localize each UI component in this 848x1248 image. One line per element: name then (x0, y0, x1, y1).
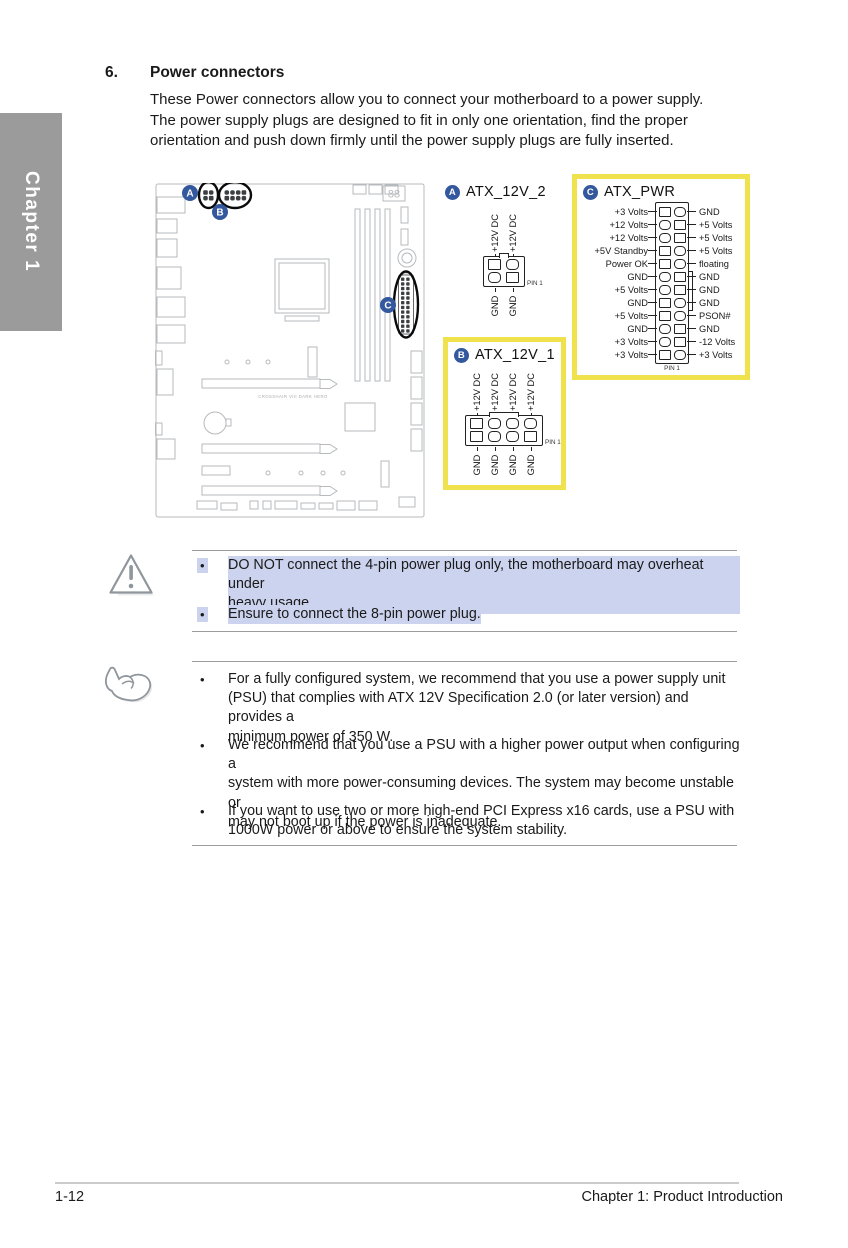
board-24pin-connector (399, 275, 414, 334)
pin-label-right: +5 Volts (699, 233, 732, 243)
leader-line (648, 354, 657, 355)
pin-label-right: +5 Volts (699, 246, 732, 256)
leader-line (687, 250, 696, 251)
leader-line (687, 237, 696, 238)
pin-row: Power OKfloating (584, 257, 744, 270)
pin-label-left: +5 Volts (584, 311, 648, 321)
callout-ellipse-b (219, 183, 251, 208)
board-4pin-connector (203, 190, 213, 200)
pin (674, 337, 686, 347)
pin (674, 233, 686, 243)
pin-label-left: +12 Volts (584, 220, 648, 230)
pin-voltage-label: +12V DC (472, 364, 482, 420)
pin (470, 431, 483, 442)
pin (659, 207, 671, 217)
pin-label-right: +5 Volts (699, 220, 732, 230)
bullet-icon: • (197, 802, 228, 840)
connector-body (483, 256, 525, 287)
connector-latch (489, 412, 519, 417)
pin (488, 272, 501, 283)
pin (470, 418, 483, 429)
chapter-tab-label: Chapter 1 (20, 171, 42, 272)
page-number: 1-12 (55, 1189, 84, 1205)
pin (524, 418, 537, 429)
footer-divider (55, 1182, 739, 1184)
divider (192, 845, 737, 846)
pin-row: +5 VoltsGND (584, 283, 744, 296)
footer-chapter-label: Chapter 1: Product Introduction (581, 1189, 783, 1205)
intro-paragraph: These Power connectors allow you to conn… (150, 90, 750, 152)
pin-label-right: GND (699, 285, 720, 295)
pin-label-left: +12 Volts (584, 233, 648, 243)
callout-ellipse-a (199, 183, 218, 208)
pin (524, 431, 537, 442)
pin (659, 233, 671, 243)
divider (192, 631, 737, 632)
pin (506, 418, 519, 429)
warning-icon (107, 552, 157, 599)
atxpwr-pinout-diagram: +3 VoltsGND+12 Volts+5 Volts+12 Volts+5 … (584, 205, 744, 372)
atx12v1-pinout-diagram: +12V DCGND+12V DCGND+12V DCGND+12V DCGND… (465, 369, 543, 491)
atxpwr-title: ATX_PWR (604, 184, 675, 200)
pin1-label: PIN 1 (527, 280, 543, 287)
pin (659, 259, 671, 269)
pin-label-right: GND (699, 207, 720, 217)
pin-rows: +3 VoltsGND+12 Volts+5 Volts+12 Volts+5 … (584, 205, 744, 361)
chapter-tab: Chapter 1 (0, 113, 62, 331)
section-title: Power connectors (150, 64, 284, 82)
pin-label-right: PSON# (699, 311, 731, 321)
pin-label-right: floating (699, 259, 729, 269)
pin (659, 246, 671, 256)
badge-a: A (445, 185, 460, 200)
leader-line (648, 328, 657, 329)
connector-latch (499, 253, 509, 258)
pin (659, 350, 671, 360)
connector-latch (689, 271, 693, 311)
pin-row: GNDGND (584, 322, 744, 335)
badge-b: B (454, 348, 469, 363)
bullet-icon: • (197, 605, 228, 624)
connector-body (465, 415, 543, 446)
pin-label-left: +3 Volts (584, 207, 648, 217)
pin-label-right: GND (699, 272, 720, 282)
pin-label-right: -12 Volts (699, 337, 735, 347)
atx12v2-title: ATX_12V_2 (466, 184, 546, 200)
pin-label-left: +3 Volts (584, 337, 648, 347)
pin (506, 259, 519, 270)
pin-voltage-label: +12V DC (508, 205, 518, 261)
board-model-label: CROSSHAIR VIII DARK HERO (258, 394, 328, 399)
pin-label-left: +5 Volts (584, 285, 648, 295)
pin-row: +12 Volts+5 Volts (584, 218, 744, 231)
pin (674, 207, 686, 217)
pin (488, 431, 501, 442)
leader-line (648, 289, 657, 290)
board-badge-b-label: B (216, 208, 223, 219)
pin (674, 220, 686, 230)
leader-line (648, 263, 657, 264)
atx12v1-callout-box: B ATX_12V_1 +12V DCGND+12V DCGND+12V DCG… (443, 337, 566, 490)
pin (659, 324, 671, 334)
atx12v1-header: B ATX_12V_1 (454, 347, 555, 363)
board-badge-a-label: A (186, 189, 193, 200)
pin-label-left: Power OK (584, 259, 648, 269)
pin (674, 246, 686, 256)
pin-row: GNDGND (584, 296, 744, 309)
pin-label-left: GND (584, 272, 648, 282)
caution-text: Ensure to connect the 8-pin power plug. (228, 605, 481, 624)
pin-voltage-label: +12V DC (526, 364, 536, 420)
manual-page: Chapter 1 6. Power connectors These Powe… (0, 0, 848, 1248)
pin1-label: PIN 1 (655, 365, 689, 372)
pin (674, 285, 686, 295)
leader-line (648, 211, 657, 212)
pin-row (468, 418, 541, 431)
atxpwr-callout-box: C ATX_PWR +3 VoltsGND+12 Volts+5 Volts+1… (572, 174, 750, 380)
pin (488, 259, 501, 270)
divider (192, 550, 737, 551)
pin (674, 324, 686, 334)
pin (506, 272, 519, 283)
pin-label-left: GND (584, 298, 648, 308)
leader-line (687, 211, 696, 212)
leader-line (648, 302, 657, 303)
pin-label-left: +3 Volts (584, 350, 648, 360)
note-hand-icon (100, 663, 156, 707)
pin-label-right: +3 Volts (699, 350, 732, 360)
leader-line (687, 341, 696, 342)
atx12v1-title: ATX_12V_1 (475, 347, 555, 363)
pin-row (486, 271, 523, 284)
pin1-label: PIN 1 (545, 439, 561, 446)
pin-label-right: GND (699, 298, 720, 308)
atxpwr-header: C ATX_PWR (583, 184, 675, 200)
pin-label-left: GND (584, 324, 648, 334)
pin (674, 350, 686, 360)
pin-row (486, 259, 523, 272)
motherboard-diagram: 88 CROSSHAIR VIII DARK HERO A B (155, 183, 425, 518)
pin (659, 285, 671, 295)
section-number: 6. (105, 64, 118, 82)
atx12v2-header: A ATX_12V_2 (445, 184, 546, 200)
note-bullet: • If you want to use two or more high-en… (197, 802, 740, 840)
pin (659, 272, 671, 282)
leader-line (687, 328, 696, 329)
note-text: If you want to use two or more high-end … (228, 802, 740, 840)
leader-line (648, 237, 657, 238)
pin-row: +3 VoltsGND (584, 205, 744, 218)
pin-row: +12 Volts+5 Volts (584, 231, 744, 244)
board-8pin-connector (225, 190, 247, 200)
pin (659, 311, 671, 321)
leader-line (648, 341, 657, 342)
caution-bullet: • Ensure to connect the 8-pin power plug… (197, 605, 481, 624)
leader-line (648, 250, 657, 251)
pin (674, 272, 686, 282)
leader-line (648, 224, 657, 225)
pin (659, 220, 671, 230)
pin-row: +3 Volts-12 Volts (584, 335, 744, 348)
leader-line (687, 354, 696, 355)
leader-line (687, 263, 696, 264)
pin (659, 298, 671, 308)
pin (674, 298, 686, 308)
badge-c: C (583, 185, 598, 200)
pin (659, 337, 671, 347)
pin (506, 431, 519, 442)
leader-line (687, 224, 696, 225)
leader-line (687, 315, 696, 316)
pin-row: GNDGND (584, 270, 744, 283)
pin-row (468, 430, 541, 443)
pin-row: +5V Standby+5 Volts (584, 244, 744, 257)
pin (488, 418, 501, 429)
pin (674, 311, 686, 321)
board-badge-c-label: C (384, 301, 391, 312)
pin-row: +5 VoltsPSON# (584, 309, 744, 322)
leader-line (648, 276, 657, 277)
pin-row: +3 Volts+3 Volts (584, 348, 744, 361)
pin-label-right: GND (699, 324, 720, 334)
atx12v2-pinout-diagram: +12V DCGND+12V DCGNDPIN 1 (483, 210, 525, 332)
debug-display: 88 (388, 189, 400, 201)
divider (192, 661, 737, 662)
pin-label-left: +5V Standby (584, 246, 648, 256)
leader-line (648, 315, 657, 316)
pin (674, 259, 686, 269)
